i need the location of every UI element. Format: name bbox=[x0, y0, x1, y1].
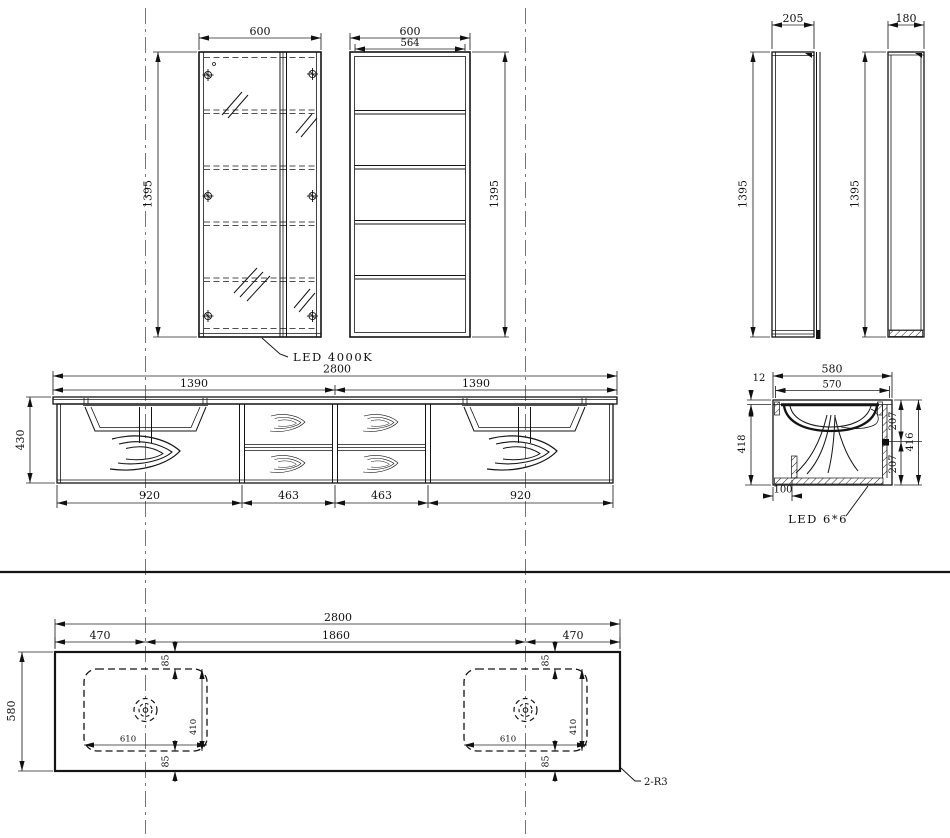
mirror-door-bottom-cap bbox=[817, 330, 821, 339]
shelf-cabinet-side-view: 180 1395 bbox=[849, 12, 925, 337]
dim-door-right: 920 bbox=[510, 489, 531, 502]
dim-section-upper: 207 bbox=[888, 411, 899, 430]
dim-mirror-height: 1395 bbox=[142, 180, 155, 208]
dim-mirror-width: 600 bbox=[250, 25, 271, 38]
led-6x6-label: LED 6*6 bbox=[788, 512, 848, 526]
svg-text:410: 410 bbox=[189, 719, 199, 735]
svg-text:85: 85 bbox=[161, 654, 172, 666]
dim-shelf-width: 600 bbox=[400, 25, 421, 38]
led-strip-leader-line bbox=[846, 486, 868, 516]
dim-mirror-side-depth: 205 bbox=[783, 12, 804, 25]
svg-text:85: 85 bbox=[541, 654, 552, 666]
dim-drawer-col-right: 463 bbox=[371, 489, 392, 502]
dim-plan-overall-width: 2800 bbox=[324, 611, 352, 624]
dim-vanity-height: 430 bbox=[14, 430, 27, 451]
mirror-cabinet-side-view: 205 1395 bbox=[737, 12, 821, 339]
dim-shelf-side-depth: 180 bbox=[896, 12, 917, 25]
shelf-cabinet-front-view: 600 564 1395 bbox=[350, 25, 509, 337]
dim-toe-offset: 100 bbox=[773, 485, 792, 496]
dim-section-inner-depth: 570 bbox=[822, 380, 841, 391]
led-leader-line bbox=[262, 338, 288, 357]
dim-section-right-height: 416 bbox=[905, 432, 916, 451]
dim-door-left: 920 bbox=[139, 489, 160, 502]
bottom-panel-hatch bbox=[775, 478, 884, 484]
corner-radius-leader-line bbox=[621, 768, 641, 781]
dim-shelf-height: 1395 bbox=[488, 180, 501, 208]
svg-text:610: 610 bbox=[500, 735, 516, 745]
grain-marks bbox=[110, 414, 557, 472]
svg-text:85: 85 bbox=[161, 755, 172, 767]
dim-mirror-side-height: 1395 bbox=[737, 180, 750, 208]
dim-vanity-overall-width: 2800 bbox=[323, 363, 351, 376]
centerlines bbox=[146, 8, 526, 834]
svg-text:610: 610 bbox=[120, 735, 136, 745]
corner-tick bbox=[915, 53, 922, 58]
dim-plan-left-offset: 470 bbox=[90, 629, 111, 642]
dim-plan-right-offset: 470 bbox=[563, 629, 584, 642]
svg-text:85: 85 bbox=[541, 755, 552, 767]
corner-radius-note: 2-R3 bbox=[644, 777, 668, 788]
left-sink-margin-dims: 85 85 bbox=[161, 641, 176, 782]
right-sink-margin-dims: 85 85 bbox=[541, 641, 556, 782]
dim-plan-center-span: 1860 bbox=[322, 629, 350, 642]
shelves bbox=[355, 111, 466, 280]
dim-plan-depth: 580 bbox=[5, 701, 18, 722]
dim-shelf-side-height: 1395 bbox=[849, 180, 862, 208]
bottom-panel-hatch bbox=[890, 331, 923, 337]
dim-section-depth: 580 bbox=[822, 363, 843, 376]
hinge-icons bbox=[203, 63, 319, 323]
hidden-shelf-lines bbox=[204, 58, 316, 329]
cabinet-dividers bbox=[240, 404, 431, 483]
toe-post-hatch bbox=[792, 456, 798, 478]
dim-vanity-right-span: 1390 bbox=[462, 377, 490, 390]
technical-drawing-canvas: 600 1395 LED 4000K 600 564 13 bbox=[0, 0, 950, 838]
vanity-front-view: 2800 1390 1390 430 920 463 463 920 bbox=[14, 363, 617, 509]
svg-text:410: 410 bbox=[569, 719, 579, 735]
drawer-rails bbox=[245, 445, 426, 451]
countertop-plan-view: 2800 470 1860 470 580 85 85 85 85 bbox=[5, 611, 668, 788]
dim-shelf-inner-width: 564 bbox=[400, 38, 419, 49]
wall-junction-block bbox=[882, 439, 889, 446]
vanity-drawing: 600 1395 LED 4000K 600 564 13 bbox=[0, 0, 950, 838]
dim-vanity-left-span: 1390 bbox=[180, 377, 208, 390]
dim-section-left-height: 418 bbox=[737, 434, 748, 453]
dim-counter-thickness: 12 bbox=[753, 373, 766, 384]
mirror-cabinet-front-view: 600 1395 LED 4000K bbox=[142, 25, 374, 364]
dim-drawer-col-left: 463 bbox=[278, 489, 299, 502]
dim-section-lower: 207 bbox=[888, 454, 899, 473]
basin-section-profile bbox=[781, 405, 879, 431]
mirror-glass-marks bbox=[222, 92, 317, 312]
vanity-section-view: 580 570 12 418 207 207 416 100 LED 6*6 bbox=[737, 363, 922, 527]
right-basin-hidden-outline bbox=[462, 398, 587, 443]
trap-pipe-lines bbox=[796, 415, 858, 474]
